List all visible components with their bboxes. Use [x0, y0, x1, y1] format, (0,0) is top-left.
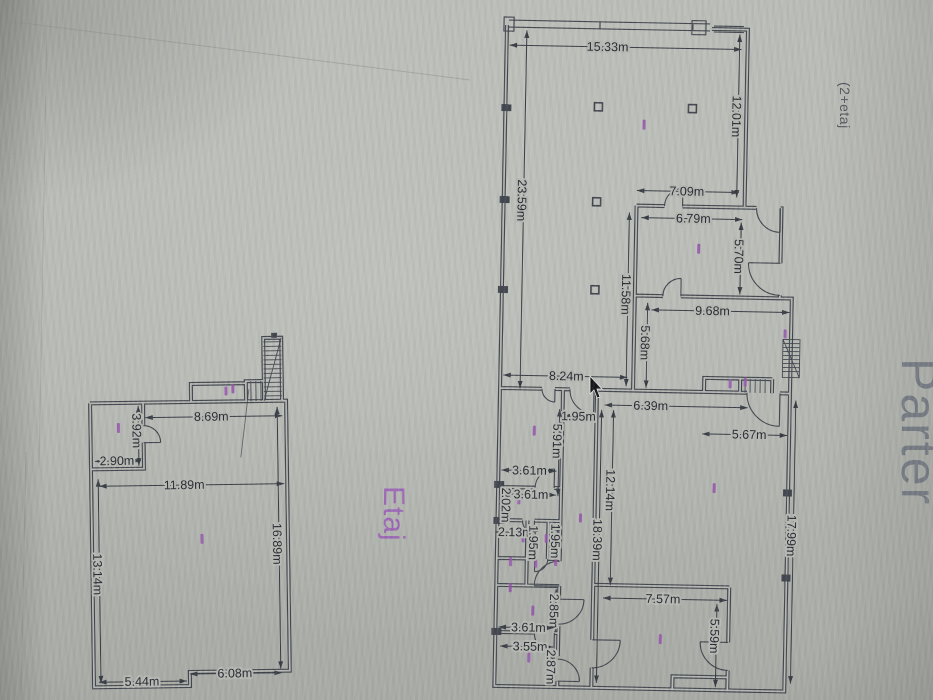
dim-room2-side: 5.68m	[638, 325, 653, 360]
dim-top-width: 15.33m	[587, 40, 629, 55]
column	[591, 286, 599, 294]
dim-room1-depth: 5.70m	[731, 239, 746, 274]
plan-title-etaj: Etaj	[376, 486, 410, 542]
dim-office-side: 2.02m	[498, 488, 513, 523]
dim-hall-right: 5.67m	[732, 427, 767, 442]
plan-etaj: 8.69m 3.92m 2.90m 11.89m 13.14m 16.89m 5…	[87, 333, 290, 690]
column	[594, 103, 602, 111]
dim-backroom-width: 7.57m	[646, 592, 681, 607]
columns-parter	[591, 103, 697, 296]
dim-room1-top: 7.09m	[669, 184, 704, 199]
dim-etaj-hall-width: 11.89m	[164, 478, 205, 493]
sheet-edge-top	[0, 20, 470, 80]
dim-etaj-room-width: 2.90m	[99, 454, 134, 468]
dim-right-side: 17.99m	[784, 515, 799, 557]
dim-corridor-len: 5.91m	[550, 424, 565, 459]
dim-store-width: 3.61m	[511, 620, 546, 635]
plan-parter: 15.33m 12.01m 23.59m 7.09m 6.79m 5.70m 1…	[490, 17, 808, 692]
dim-store-depth: 2.85m	[546, 594, 561, 629]
plan-title-parter: Parter	[890, 358, 933, 506]
dim-etaj-bottom-left: 5.44m	[125, 674, 160, 688]
corner-note: (2+etaj	[837, 82, 853, 129]
dim-back-width: 3.55m	[513, 639, 548, 654]
dim-office1: 3.61m	[512, 463, 547, 478]
dim-room-depth: 12.14m	[603, 469, 618, 511]
column	[593, 198, 601, 206]
dim-room2-width: 9.68m	[695, 304, 730, 319]
dim-etaj-right-side: 16.89m	[270, 523, 285, 565]
stair-mark	[271, 333, 277, 338]
dim-showroom-depth: 12.01m	[729, 95, 744, 137]
column	[688, 105, 696, 113]
dim-wc-b: 1.95m	[526, 525, 541, 560]
dim-back-depth: 2.87m	[543, 649, 558, 684]
dim-mid-wall: 11.58m	[618, 274, 633, 315]
sheet-edge-vertical	[39, 26, 47, 468]
dim-backroom-depth: 5.59m	[707, 619, 722, 654]
dim-etaj-bottom-right: 6.08m	[217, 666, 252, 680]
etaj-walls	[89, 338, 290, 688]
sheet-fold-left	[21, 452, 26, 700]
dim-etaj-top-width: 8.69m	[194, 409, 229, 423]
dim-hall-top: 8.24m	[549, 369, 584, 384]
dimensions-etaj: 8.69m 3.92m 2.90m 11.89m 13.14m 16.89m 5…	[88, 404, 287, 690]
window-band	[504, 17, 744, 36]
dim-etaj-room-depth: 3.92m	[129, 413, 143, 448]
doors-etaj	[143, 425, 160, 442]
dim-wc-a: 1.95m	[548, 524, 563, 559]
dim-room1-width: 6.79m	[676, 211, 711, 226]
dim-corridor-door: 1.95m	[561, 409, 596, 424]
photographed-floorplan: { "titles": { "left_plan": "Etaj", "righ…	[0, 0, 933, 700]
dim-hall-width: 6.39m	[633, 399, 668, 414]
sheet-edges	[0, 20, 470, 700]
dim-etaj-left-side: 13.14m	[90, 553, 105, 595]
dim-office2: 3.61m	[513, 487, 548, 502]
dim-left-side: 23.59m	[514, 179, 529, 221]
dim-inner-side: 18.39m	[590, 519, 605, 561]
room-label-marks-etaj	[116, 384, 236, 545]
dimensions-parter: 15.33m 12.01m 23.59m 7.09m 6.79m 5.70m 1…	[492, 30, 807, 690]
floorplan-canvas: 15.33m 12.01m 23.59m 7.09m 6.79m 5.70m 1…	[0, 0, 933, 700]
mouse-cursor	[590, 376, 602, 398]
